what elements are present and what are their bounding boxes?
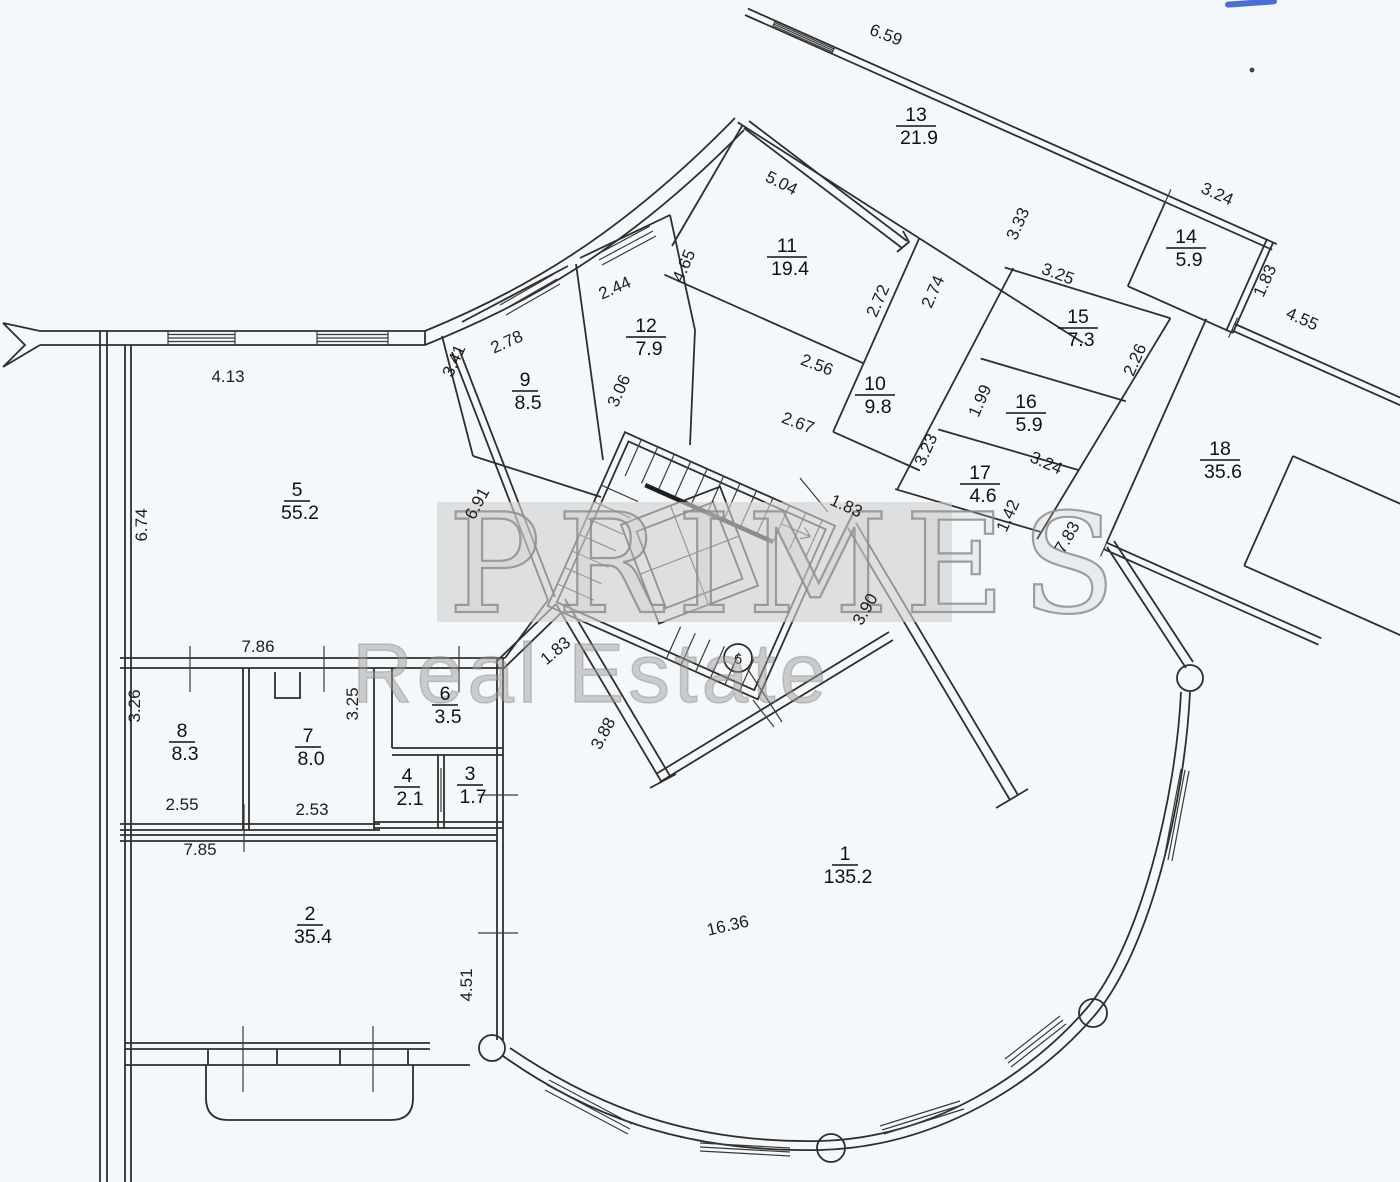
room-number: 7 [303,725,314,747]
dimension-label: 4.55 [1283,304,1321,335]
dimension-label: 3.24 [1027,448,1065,479]
dimension-label: 3.25 [343,687,362,720]
scan-marks [1225,0,1277,72]
room-area: 5.9 [1175,249,1202,271]
dimension-label: 3.23 [911,431,942,469]
room-number: 14 [1175,226,1197,248]
room-area: 55.2 [281,502,319,524]
room-area: 2.1 [396,788,423,810]
dimension-label: 4.13 [211,367,244,386]
room-number: 18 [1209,438,1231,460]
room-area: 4.6 [969,485,996,507]
room-number: 1 [840,843,851,865]
room-area: 9.8 [864,396,891,418]
room-area: 7.9 [635,338,662,360]
curved-wall-upper [425,118,744,345]
room-area: 35.4 [294,926,332,948]
room-number: 2 [305,903,316,925]
dimension-label: 2.56 [798,350,836,380]
room-area: 8.5 [514,392,541,414]
room-area: 135.2 [824,866,873,888]
room-area: 8.0 [297,748,324,770]
room-number: 13 [905,104,927,126]
dimension-label: 3.24 [1198,179,1236,210]
dimension-label: 2.55 [165,795,198,814]
room-area: 5.9 [1015,414,1042,436]
room-number: 3 [465,763,476,785]
dimension-label: 2.53 [295,800,328,819]
dimension-label: 1.99 [965,382,996,420]
room-number: 10 [864,373,886,395]
dimension-label: 6.59 [867,20,905,50]
room-number: 12 [635,315,657,337]
dimension-label: 3.33 [1003,205,1034,243]
room-number: 4 [402,765,413,787]
dimension-label: 2.67 [779,408,817,438]
dimension-label: 4.51 [457,968,476,1001]
room-number: 9 [520,369,531,391]
dimension-label: 7.86 [241,637,274,656]
room-area: 35.6 [1204,461,1242,483]
watermark-subtitle: Real Estate [352,626,830,720]
curved-wall-lower [503,692,1190,1156]
room-area: 7.3 [1067,329,1094,351]
room-number: 5 [292,479,303,501]
room-area: 19.4 [771,258,809,280]
room-number: 17 [969,462,991,484]
walls-rotated-wing [493,2,1400,939]
room-area: 1.7 [459,786,486,808]
room-number: 8 [177,720,188,742]
columns [479,665,1203,1162]
dimension-label: 6.74 [132,508,151,541]
dimension-label: 2.44 [596,273,634,304]
room-area: 21.9 [900,127,938,149]
dimension-label: 4.65 [669,247,700,285]
dimension-label: 2.78 [488,327,526,358]
dimension-label: 3.41 [439,342,470,380]
dimension-label: 3.06 [604,372,635,410]
watermark-title: PRIMES [448,484,1132,645]
dimension-label: 5.04 [762,167,800,199]
room-number: 15 [1067,306,1089,328]
dimension-label: 3.88 [587,714,619,752]
dimension-label: 2.74 [918,273,949,311]
dimension-label: 16.36 [705,912,751,940]
floor-plan-drawing: 6 PRIMES Real Estate 1135.2235.431.742.1… [0,0,1400,1182]
room-number: 16 [1015,391,1037,413]
room-number: 6 [440,683,451,705]
dimension-label: 7.85 [183,840,216,859]
dimension-label: 3.26 [125,689,144,722]
room-area: 3.5 [434,706,461,728]
dimension-label: 2.72 [863,282,894,320]
room-area: 8.3 [171,743,198,765]
room-number: 11 [777,235,797,257]
floor-plan-page: 6 PRIMES Real Estate 1135.2235.431.742.1… [0,0,1400,1182]
